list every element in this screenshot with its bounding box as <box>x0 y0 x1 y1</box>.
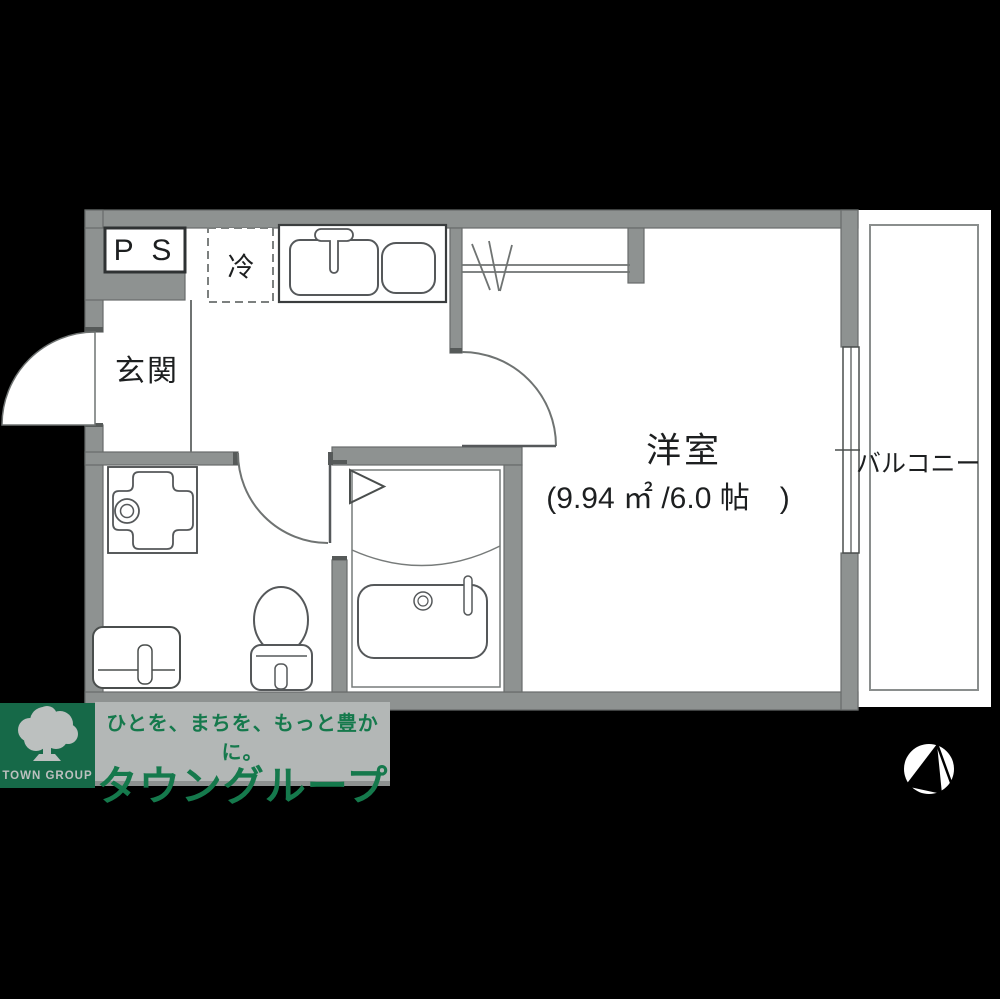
company-name: タウングループ <box>95 766 390 807</box>
toilet-icon <box>251 587 312 690</box>
washing-machine-pan-icon <box>108 467 197 553</box>
floor-plan-drawing <box>0 0 1000 999</box>
tree-icon <box>0 703 95 768</box>
western-room-label: 洋室 <box>646 423 722 474</box>
wall-kitchen-room-divider <box>450 228 462 353</box>
company-banner: ひとを、まちを、もっと豊かに。 タウングループ <box>95 702 390 786</box>
wall-right-lower <box>841 553 858 710</box>
refrigerator-label: 冷 <box>228 246 255 285</box>
wall-right-upper <box>841 210 858 347</box>
north-arrow-icon <box>901 741 957 797</box>
company-tagline: ひとを、まちを、もっと豊かに。 <box>95 707 390 765</box>
wall-washroom-top <box>85 452 238 465</box>
ps-label: P S <box>114 234 177 268</box>
washbasin-icon <box>93 627 180 688</box>
town-group-logo-text: TOWN GROUP <box>0 770 95 782</box>
kitchen-counter <box>279 225 446 302</box>
entrance-door-arc <box>2 332 95 425</box>
balcony-label: バルコニー <box>856 444 981 480</box>
wall-bath-left <box>332 560 347 692</box>
stove-icon <box>382 243 435 293</box>
wall-room-stub <box>628 228 644 283</box>
wall-bath-top <box>332 447 522 465</box>
town-group-logo-box: TOWN GROUP <box>0 703 95 788</box>
wall-bath-right <box>504 465 522 692</box>
entrance-label: 玄関 <box>115 346 179 390</box>
western-room-size-label: (9.94 ㎡ /6.0 帖 ) <box>546 473 789 517</box>
floor-plan-page: P S 冷 玄関 洋室 (9.94 ㎡ /6.0 帖 ) バルコニー TOWN … <box>0 0 1000 999</box>
wall-top <box>85 210 858 228</box>
